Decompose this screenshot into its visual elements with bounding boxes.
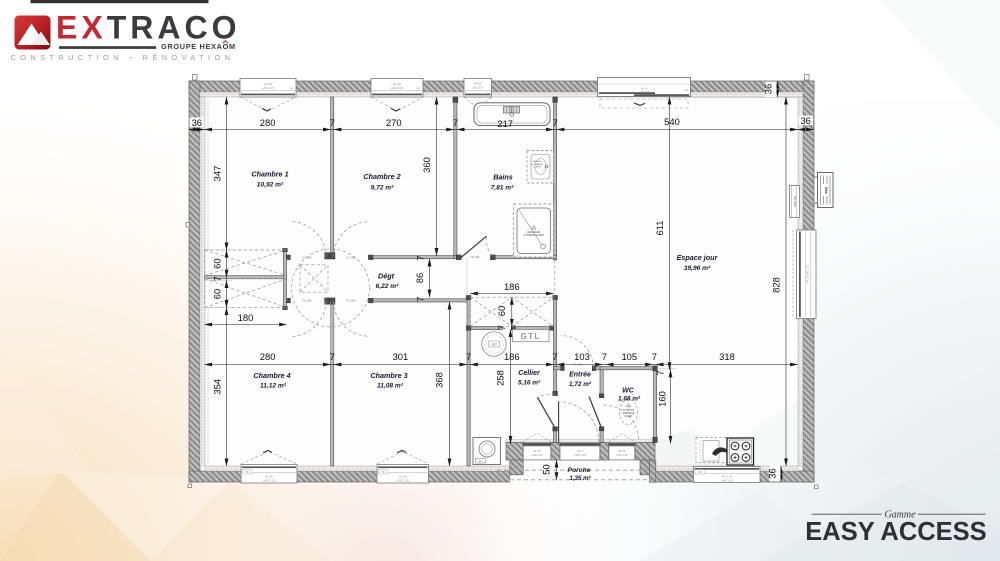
svg-text:LAR 2,15: LAR 2,15: [262, 86, 275, 90]
svg-text:36: 36: [800, 115, 810, 126]
svg-text:7: 7: [466, 351, 471, 362]
svg-text:LAR 2,15: LAR 2,15: [531, 453, 543, 457]
svg-text:Entrée: Entrée: [569, 372, 591, 379]
svg-text:F1 L080: F1 L080: [573, 364, 583, 367]
svg-text:258: 258: [495, 370, 506, 386]
svg-text:270: 270: [386, 117, 402, 128]
svg-text:347: 347: [212, 166, 223, 182]
svg-text:6,22 m²: 6,22 m²: [376, 283, 400, 290]
svg-text:7: 7: [415, 297, 426, 302]
svg-text:F1 L080: F1 L080: [302, 256, 312, 259]
svg-text:1,35 m²: 1,35 m²: [569, 475, 591, 482]
svg-text:LAR 2,15: LAR 2,15: [396, 479, 409, 483]
svg-text:VR: VR: [381, 470, 385, 474]
svg-text:60: 60: [212, 258, 223, 268]
svg-text:36: 36: [192, 117, 202, 128]
svg-text:50: 50: [541, 464, 552, 474]
svg-text:368: 368: [434, 372, 445, 388]
svg-text:Chambre 1: Chambre 1: [251, 170, 288, 179]
svg-text:LAR 2,15: LAR 2,15: [391, 86, 404, 90]
svg-text:7,81 m²: 7,81 m²: [491, 185, 515, 192]
svg-text:AF 60: AF 60: [618, 449, 626, 453]
svg-text:SDB 130: SDB 130: [793, 195, 797, 207]
svg-text:VR: VR: [416, 87, 420, 91]
svg-text:354: 354: [212, 379, 223, 395]
svg-text:301: 301: [393, 351, 409, 362]
svg-text:F1 L080: F1 L080: [346, 300, 356, 303]
svg-text:828: 828: [771, 277, 782, 293]
svg-text:Cellier: Cellier: [518, 370, 541, 377]
svg-text:10,92 m²: 10,92 m²: [257, 182, 284, 189]
svg-text:Chambre 4: Chambre 4: [253, 371, 290, 380]
svg-text:60: 60: [496, 306, 507, 316]
svg-text:A CHARGE: A CHARGE: [531, 163, 543, 166]
svg-text:EASY ACCESS: EASY ACCESS: [805, 518, 986, 546]
svg-text:280: 280: [260, 351, 276, 362]
svg-text:36: 36: [763, 84, 774, 94]
svg-text:11,12 m²: 11,12 m²: [260, 383, 287, 390]
svg-text:60: 60: [212, 289, 223, 299]
svg-text:7: 7: [552, 117, 557, 128]
svg-text:EXTRACO: EXTRACO: [56, 10, 240, 46]
svg-text:5,16 m²: 5,16 m²: [518, 380, 541, 387]
svg-text:LAR 2,5: LAR 2,5: [639, 90, 650, 94]
svg-text:F1 L080: F1 L080: [346, 256, 356, 259]
svg-text:7: 7: [330, 351, 335, 362]
svg-text:LAR 2,15: LAR 2,15: [721, 479, 734, 483]
svg-text:CUVETTE: CUVETTE: [623, 410, 634, 412]
svg-text:11,08 m²: 11,08 m²: [377, 383, 404, 390]
svg-text:280: 280: [260, 117, 276, 128]
svg-text:AF 60: AF 60: [533, 449, 541, 453]
svg-text:A CHARGE CLIENT: A CHARGE CLIENT: [523, 234, 544, 237]
svg-text:7: 7: [496, 325, 507, 330]
svg-text:VR: VR: [245, 470, 249, 474]
svg-text:7: 7: [453, 117, 458, 128]
svg-text:7: 7: [415, 256, 426, 261]
svg-text:LAR 2,15: LAR 2,15: [574, 453, 586, 457]
svg-text:318: 318: [719, 351, 735, 362]
svg-text:GROUPE HEXAOM: GROUPE HEXAOM: [161, 42, 236, 51]
svg-text:105: 105: [621, 351, 637, 362]
svg-text:7: 7: [212, 276, 223, 281]
svg-text:36: 36: [767, 468, 778, 478]
svg-text:F1 L080: F1 L080: [302, 300, 312, 303]
svg-text:Chambre 2: Chambre 2: [363, 172, 400, 181]
svg-text:Chambre 3: Chambre 3: [370, 371, 407, 380]
svg-text:CLIENT: CLIENT: [624, 416, 633, 418]
svg-text:AF 2 LAR 2,15: AF 2 LAR 2,15: [806, 264, 810, 283]
svg-text:Porche: Porche: [567, 467, 590, 474]
svg-text:LAR 2,15: LAR 2,15: [616, 453, 628, 457]
svg-text:Espace jour: Espace jour: [677, 253, 719, 262]
svg-text:86: 86: [414, 273, 425, 283]
svg-text:RECEVEUR: RECEVEUR: [527, 232, 540, 234]
svg-text:A CHARGE: A CHARGE: [623, 412, 635, 415]
svg-text:217: 217: [497, 118, 513, 129]
svg-text:CLIENT: CLIENT: [533, 167, 541, 169]
svg-text:ALL 0,9: ALL 0,9: [473, 86, 483, 90]
svg-text:186: 186: [504, 281, 520, 292]
svg-text:9,72 m²: 9,72 m²: [371, 185, 395, 192]
svg-text:540: 540: [664, 116, 680, 127]
svg-text:GTL: GTL: [521, 332, 541, 341]
svg-text:VR: VR: [289, 87, 293, 91]
svg-text:180: 180: [238, 312, 254, 323]
svg-text:WC: WC: [622, 388, 635, 395]
svg-text:F9 L090: F9 L090: [470, 256, 480, 259]
svg-text:39,96 m²: 39,96 m²: [684, 265, 711, 272]
svg-text:7: 7: [552, 351, 557, 362]
svg-text:Dégt: Dégt: [378, 272, 395, 281]
svg-text:160: 160: [657, 391, 668, 407]
svg-text:Bains: Bains: [493, 173, 513, 182]
svg-text:7: 7: [652, 351, 657, 362]
svg-text:611: 611: [654, 221, 665, 236]
svg-text:CONSTRUCTION - RÉNOVATION: CONSTRUCTION - RÉNOVATION: [11, 53, 235, 62]
svg-text:PAC: PAC: [824, 186, 828, 193]
svg-text:360: 360: [421, 157, 432, 173]
svg-text:LAR 2,15: LAR 2,15: [263, 479, 276, 483]
svg-text:1,68 m²: 1,68 m²: [618, 396, 641, 403]
svg-text:186: 186: [504, 351, 520, 362]
svg-text:7: 7: [330, 117, 335, 128]
svg-text:VR: VR: [684, 88, 688, 92]
svg-text:CET: CET: [491, 343, 497, 347]
svg-text:VR: VR: [698, 470, 702, 474]
svg-text:VASQUE: VASQUE: [533, 160, 542, 163]
svg-text:7: 7: [655, 370, 666, 375]
svg-text:7: 7: [602, 351, 607, 362]
svg-text:1,72 m²: 1,72 m²: [569, 381, 592, 388]
svg-text:103: 103: [574, 351, 590, 362]
